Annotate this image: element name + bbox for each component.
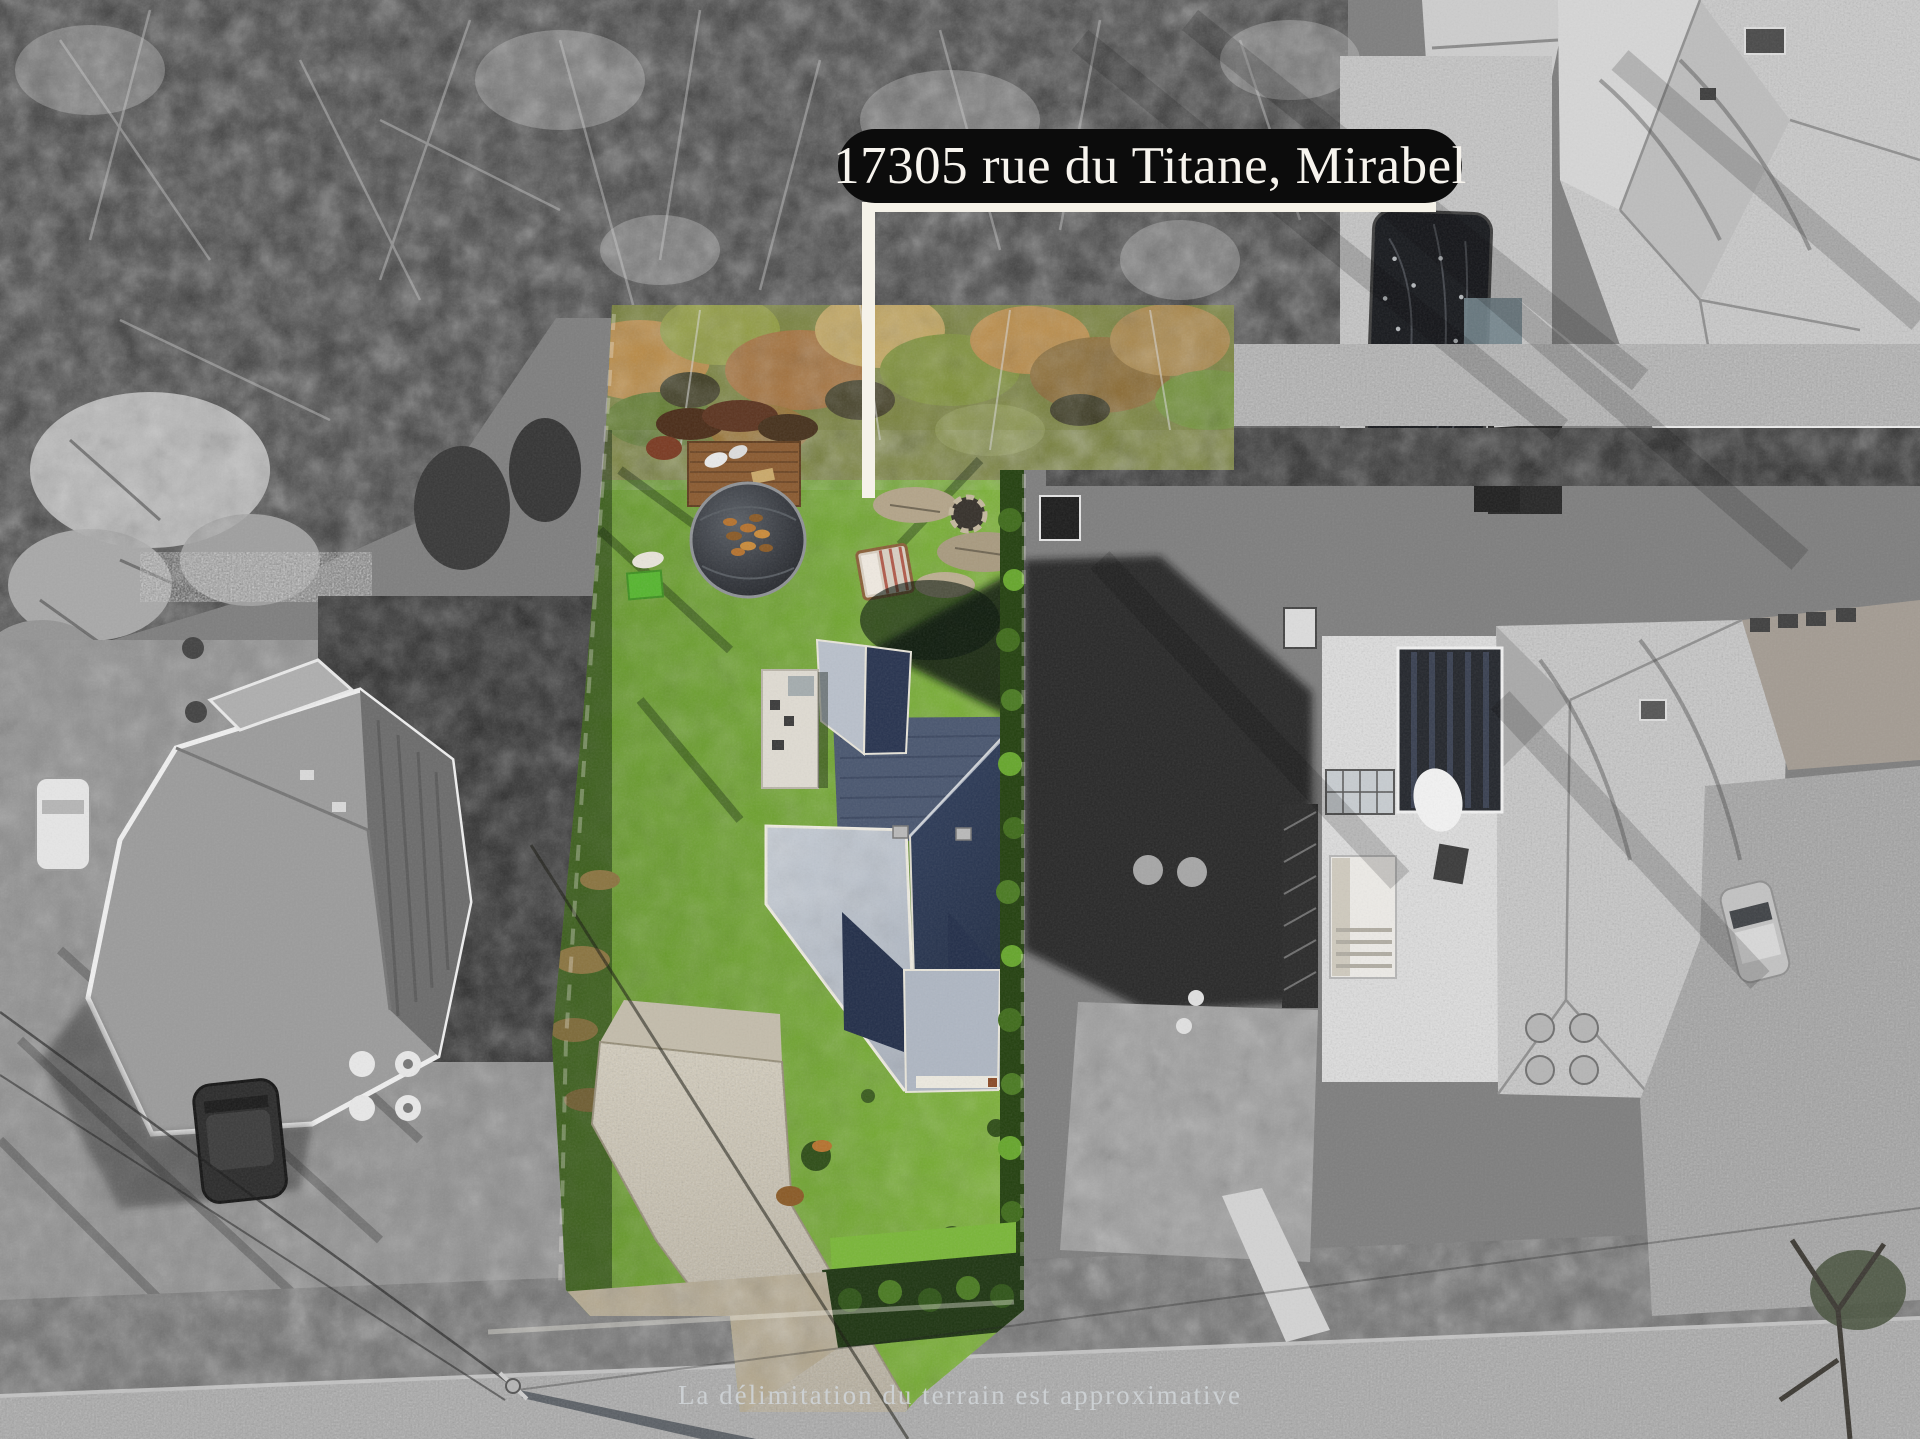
disclaimer-text: La délimitation du terrain est approxima… [0, 1380, 1920, 1411]
aerial-photo-stage: 17305 rue du Titane, Mirabel La délimita… [0, 0, 1920, 1439]
photo-grain [0, 0, 1920, 1439]
boundary-top-line [862, 202, 1436, 212]
address-label: 17305 rue du Titane, Mirabel [833, 136, 1467, 196]
label-leader-line [862, 202, 875, 498]
address-pill: 17305 rue du Titane, Mirabel [838, 129, 1462, 203]
aerial-photo [0, 0, 1920, 1439]
